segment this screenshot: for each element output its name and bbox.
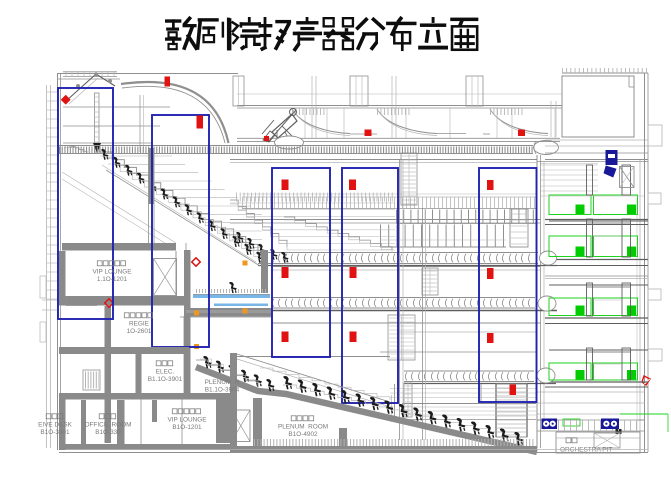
svg-text:B1O-4902: B1O-4902 bbox=[288, 431, 318, 438]
svg-text:B1.1O-3901: B1.1O-3901 bbox=[148, 376, 183, 383]
svg-text:1O-2601: 1O-2601 bbox=[127, 328, 152, 335]
svg-text:B1O-330: B1O-330 bbox=[95, 429, 121, 436]
svg-text:PLENUM ROOM: PLENUM ROOM bbox=[278, 424, 328, 431]
svg-text:EIVE DESK: EIVE DESK bbox=[38, 422, 72, 429]
svg-text:OFFICE ROOM: OFFICE ROOM bbox=[85, 422, 132, 429]
svg-text:1.035: 1.035 bbox=[64, 144, 75, 149]
svg-text:ELEC.: ELEC. bbox=[156, 369, 175, 376]
svg-text:B1O-1201: B1O-1201 bbox=[172, 424, 202, 431]
svg-text:B1.1O-3904: B1.1O-3904 bbox=[205, 387, 240, 394]
svg-text:B1O-3301: B1O-3301 bbox=[40, 429, 70, 436]
svg-text:REGIE: REGIE bbox=[129, 321, 149, 328]
svg-text:PLENUM R: PLENUM R bbox=[205, 379, 240, 386]
svg-text:1.1O-1201: 1.1O-1201 bbox=[97, 276, 128, 283]
svg-text:VIP LOUNGE: VIP LOUNGE bbox=[93, 269, 132, 276]
svg-text:VIP LOUNGE: VIP LOUNGE bbox=[168, 417, 207, 424]
